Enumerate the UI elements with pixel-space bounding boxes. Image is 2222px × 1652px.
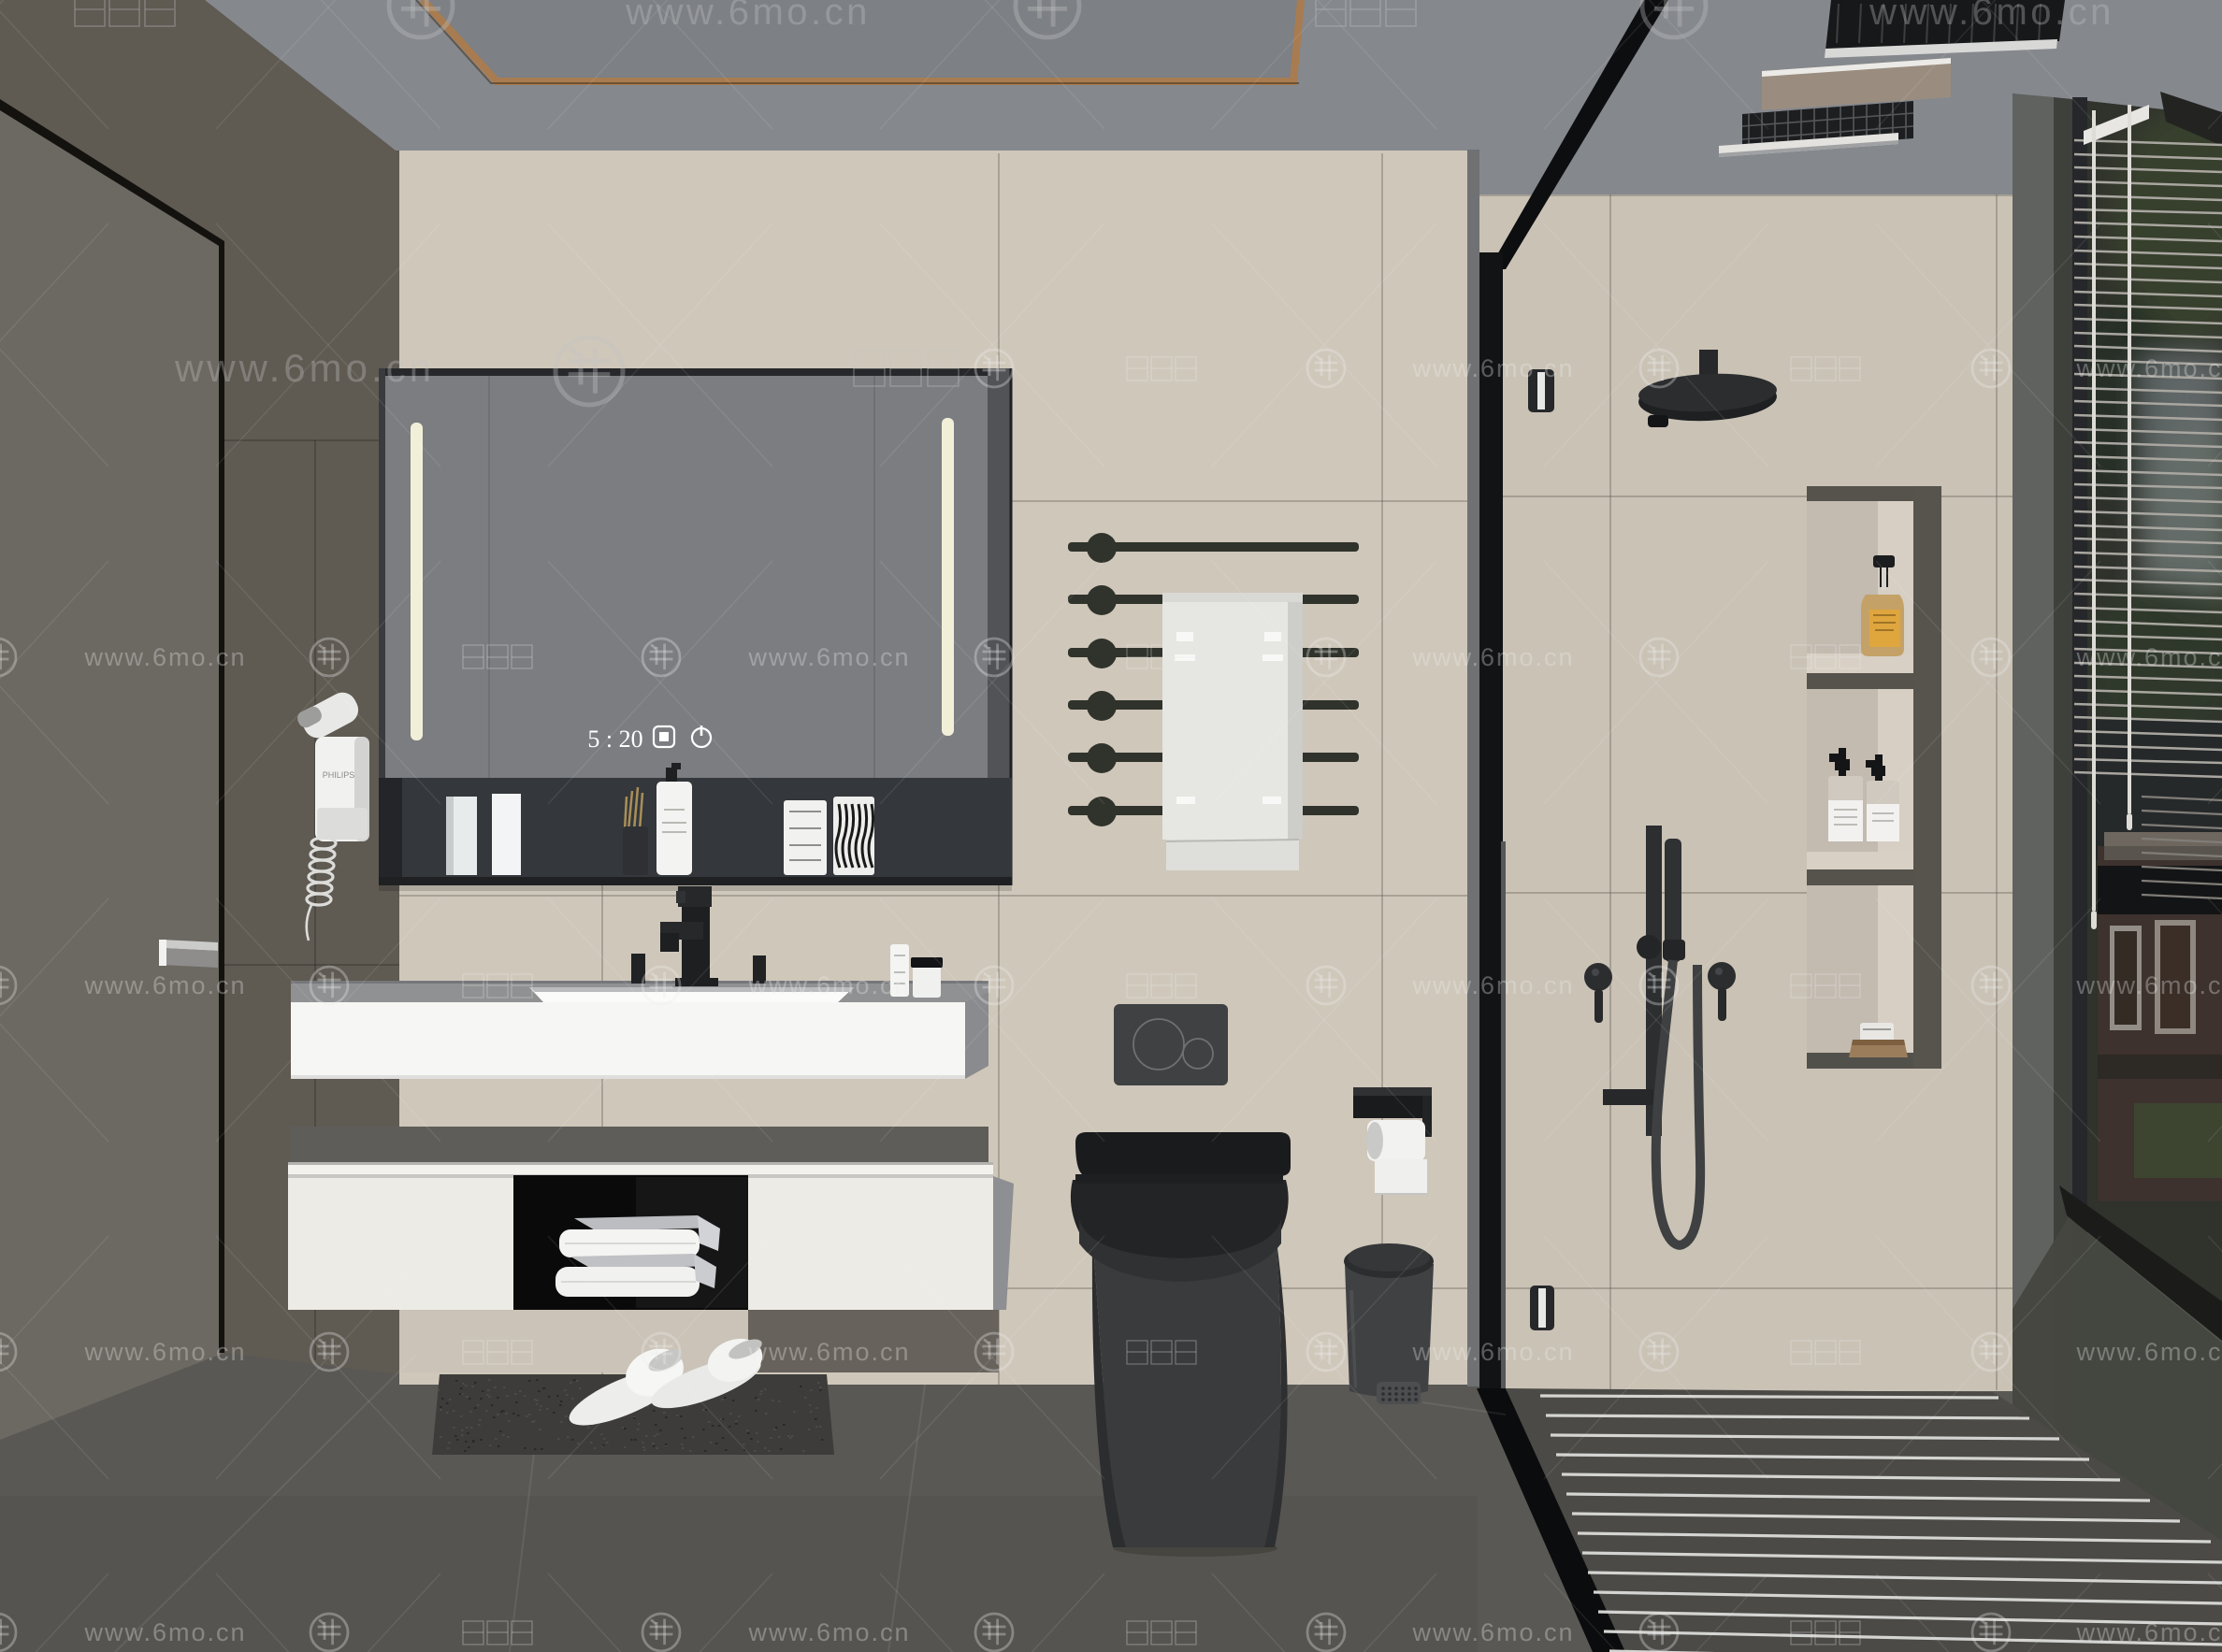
svg-text:www.6mo.cn: www.6mo.cn bbox=[174, 346, 435, 390]
svg-text:www.6mo.cn: www.6mo.cn bbox=[1411, 643, 1574, 671]
svg-text:www.6mo.cn: www.6mo.cn bbox=[2075, 1618, 2222, 1646]
svg-text:PHILIPS: PHILIPS bbox=[323, 770, 355, 780]
svg-text:www.6mo.cn: www.6mo.cn bbox=[83, 1338, 246, 1366]
svg-text:www.6mo.cn: www.6mo.cn bbox=[1411, 1618, 1574, 1646]
svg-text:www.6mo.cn: www.6mo.cn bbox=[2075, 971, 2222, 999]
svg-text:www.6mo.cn: www.6mo.cn bbox=[1868, 0, 2114, 33]
svg-text:www.6mo.cn: www.6mo.cn bbox=[1411, 971, 1574, 999]
svg-text:www.6mo.cn: www.6mo.cn bbox=[2075, 354, 2222, 382]
svg-text:www.6mo.cn: www.6mo.cn bbox=[83, 1618, 246, 1646]
svg-text:www.6mo.cn: www.6mo.cn bbox=[83, 643, 246, 671]
svg-text:www.6mo.cn: www.6mo.cn bbox=[2075, 643, 2222, 671]
svg-text:www.6mo.cn: www.6mo.cn bbox=[1411, 1338, 1574, 1366]
svg-text:www.6mo.cn: www.6mo.cn bbox=[747, 1618, 910, 1646]
svg-text:www.6mo.cn: www.6mo.cn bbox=[747, 1338, 910, 1366]
svg-text:www.6mo.cn: www.6mo.cn bbox=[83, 971, 246, 999]
svg-text:www.6mo.cn: www.6mo.cn bbox=[625, 0, 871, 33]
svg-text:www.6mo.cn: www.6mo.cn bbox=[1411, 354, 1574, 382]
svg-text:www.6mo.cn: www.6mo.cn bbox=[747, 643, 910, 671]
svg-text:5 : 20: 5 : 20 bbox=[587, 725, 642, 753]
svg-text:www.6mo.cn: www.6mo.cn bbox=[2075, 1338, 2222, 1366]
svg-text:www.6mo.cn: www.6mo.cn bbox=[747, 971, 910, 999]
